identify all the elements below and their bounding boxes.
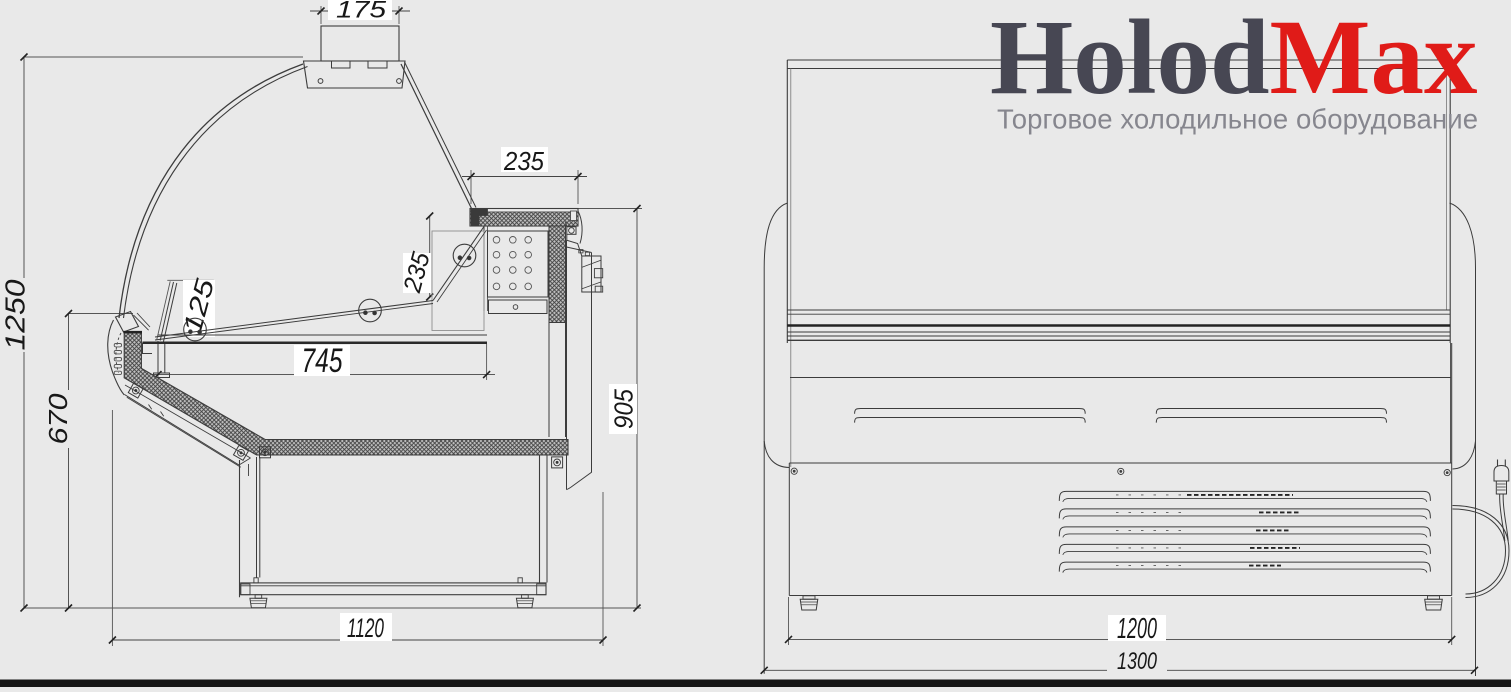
svg-text:745: 745 (302, 342, 343, 380)
svg-text:235: 235 (503, 146, 544, 176)
svg-text:1120: 1120 (347, 613, 384, 643)
svg-text:175: 175 (336, 0, 387, 24)
svg-text:905: 905 (608, 389, 638, 429)
svg-text:HolodMax: HolodMax (990, 0, 1477, 117)
svg-text:670: 670 (43, 393, 73, 445)
svg-text:Торговое холодильное оборудова: Торговое холодильное оборудование (997, 104, 1478, 135)
svg-text:1300: 1300 (1117, 648, 1157, 675)
svg-text:1250: 1250 (0, 279, 31, 350)
svg-text:1200: 1200 (1117, 613, 1157, 645)
